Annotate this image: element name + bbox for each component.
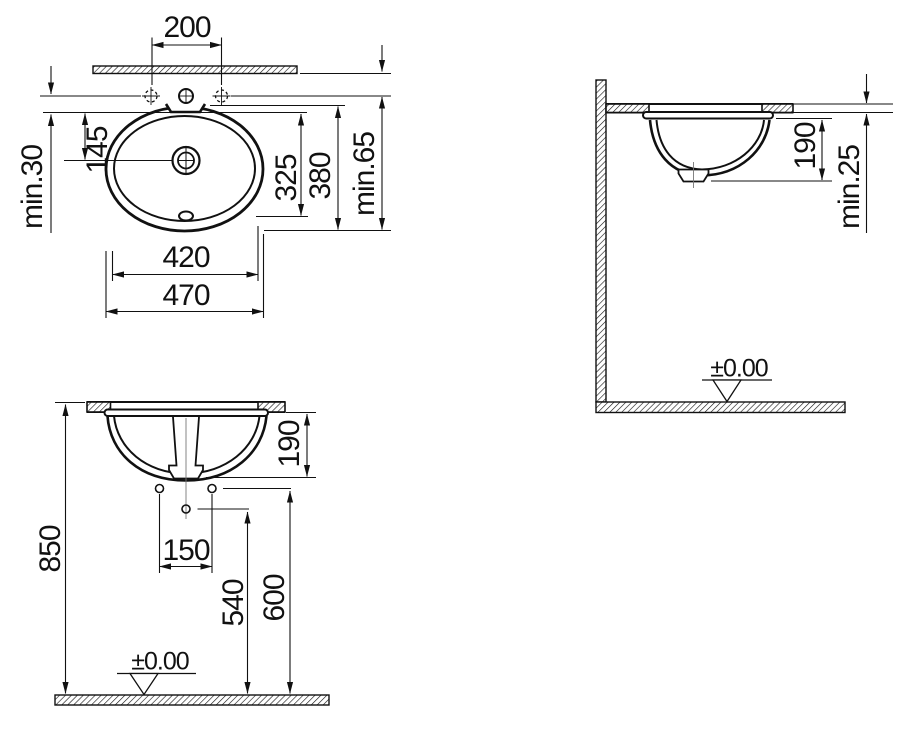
tap-hole-right — [213, 87, 231, 105]
counter-section-back — [606, 104, 649, 113]
dim-420-label: 420 — [162, 243, 209, 273]
dim-325-label: 325 — [272, 154, 302, 201]
dim-200-lines — [152, 38, 222, 86]
dim-540-label: 540 — [219, 579, 249, 626]
wall-section — [596, 80, 606, 402]
bowl-inner-side — [657, 120, 765, 170]
dim-190-front-label: 190 — [275, 420, 305, 467]
dim-190-side-label: 190 — [791, 122, 821, 169]
basin-rim-side — [643, 112, 773, 119]
dim-min30-label: min.30 — [18, 145, 48, 229]
dim-min65-label: min.65 — [350, 132, 380, 216]
dim-600-label: 600 — [260, 574, 290, 621]
plan-view — [40, 38, 391, 319]
technical-drawing: 200 145 min.30 325 380 min.65 420 470 19… — [0, 0, 900, 731]
tap-hole-left — [142, 87, 160, 105]
dim-380-label: 380 — [306, 152, 336, 199]
dim-850-label: 850 — [36, 525, 66, 572]
datum-symbol-side — [702, 380, 772, 402]
tap-hole-center — [179, 89, 193, 103]
dim-470-label: 470 — [162, 281, 209, 311]
counter-edge-strip — [93, 66, 297, 74]
supply-right — [208, 485, 216, 493]
dim-200-label: 200 — [163, 13, 210, 43]
overflow-hole — [179, 212, 193, 221]
rim-notch — [166, 100, 205, 112]
basin-rim — [105, 410, 269, 417]
dim-145-label: 145 — [83, 126, 113, 173]
datum-side-label: ±0.00 — [710, 357, 767, 382]
datum-front-label: ±0.00 — [131, 650, 188, 675]
dim-min25-label: min.25 — [835, 145, 865, 229]
floor-front — [55, 695, 329, 705]
datum-symbol-front — [117, 674, 196, 695]
floor-side — [596, 402, 845, 413]
dim-150-label: 150 — [162, 536, 209, 566]
supply-left — [156, 485, 164, 493]
